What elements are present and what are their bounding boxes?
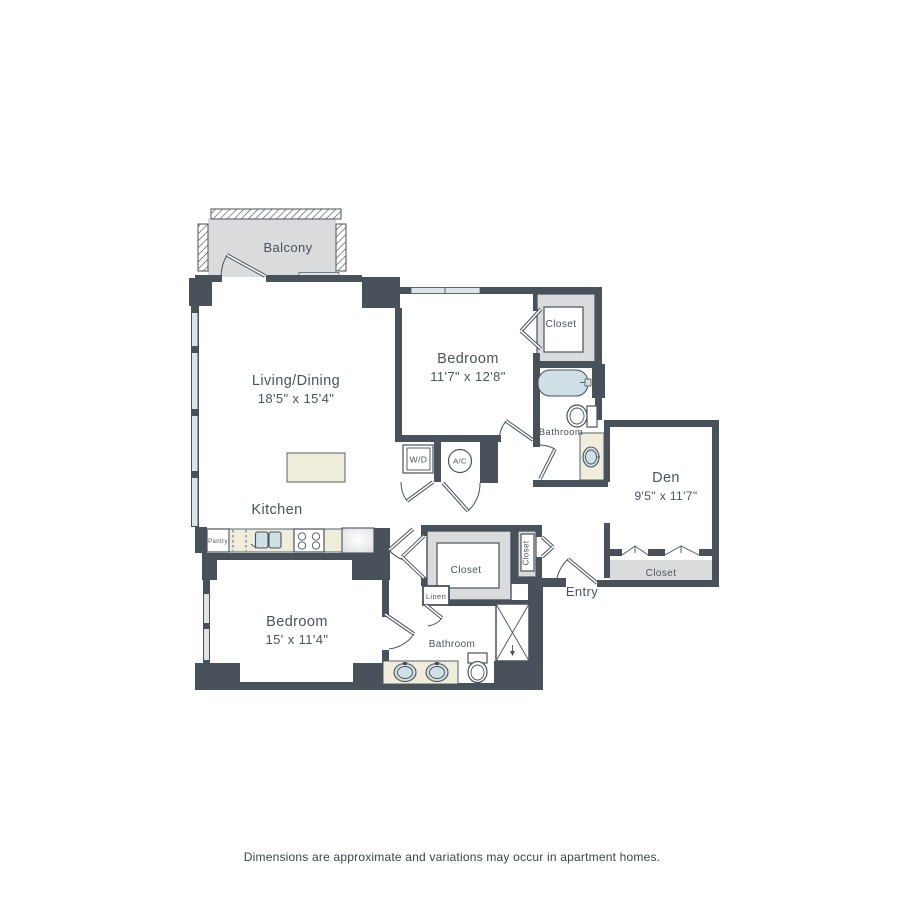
door-swing-arc: [468, 483, 480, 511]
window: [204, 594, 209, 623]
room-bathroom-1: Bathroom: [533, 353, 608, 487]
wall: [480, 440, 498, 483]
wall: [395, 308, 402, 442]
living-dining-label: Living/Dining: [252, 373, 340, 389]
room-bedroom-1: Bedroom 11'7" x 12'8": [396, 287, 543, 442]
entry-closet-door: [542, 537, 553, 557]
balcony: Balcony: [198, 209, 346, 280]
door-swing-arc: [428, 618, 442, 626]
door-leaf-core: [402, 536, 424, 557]
stove-body: [294, 529, 324, 552]
disclaimer-text: Dimensions are approximate and variation…: [244, 850, 660, 864]
kitchen-label: Kitchen: [251, 502, 302, 518]
balcony-railing-right: [336, 224, 346, 271]
washer-dryer-door: [401, 482, 433, 501]
bedroom-2-label: Bedroom: [266, 614, 328, 630]
window: [192, 313, 198, 346]
bedroom-2-dimensions: 15' x 11'4": [266, 632, 329, 647]
wall: [604, 523, 610, 578]
balcony-label: Balcony: [263, 240, 312, 255]
double-vanity-icon: [383, 661, 458, 684]
wall: [592, 364, 605, 398]
wall: [374, 528, 390, 553]
linen-label: Linen: [426, 592, 446, 601]
hall-door: [389, 529, 413, 560]
ac-door: [443, 483, 480, 511]
ac-unit-icon: A/C: [449, 450, 472, 473]
door-jamb: [610, 549, 622, 556]
toilet-tank: [587, 406, 597, 427]
entry-label: Entry: [566, 584, 598, 599]
bedroom-1-closet-label: Closet: [546, 319, 577, 330]
wall: [189, 278, 212, 306]
bedroom-1-label: Bedroom: [437, 351, 499, 367]
vanity-icon: [580, 433, 604, 480]
wall: [536, 557, 542, 577]
washer-dryer-label: W/D: [410, 455, 428, 465]
bathtub-icon: [538, 370, 591, 396]
toilet-icon: [567, 405, 597, 427]
window: [192, 353, 198, 409]
wall: [217, 553, 352, 560]
floor-plan-drawing: Balcony Living/Dining 18'5" x 15'4" Kitc…: [0, 0, 900, 900]
pantry-label: Pantry: [208, 539, 228, 545]
door-swing-arc: [389, 634, 414, 649]
balcony-railing-left: [198, 224, 208, 271]
wall: [595, 287, 602, 420]
door-leaf-core: [542, 547, 553, 557]
door-swing-arc: [540, 445, 555, 449]
window: [411, 288, 480, 294]
utility-closets: W/D A/C: [401, 440, 498, 511]
room-den: Closet Den 9'5" x 11'7": [604, 420, 719, 587]
door-leaf-core: [385, 614, 414, 634]
window: [192, 416, 198, 471]
bedroom-1-dimensions: 11'7" x 12'8": [430, 369, 506, 384]
den-dimensions: 9'5" x 11'7": [634, 489, 697, 503]
wall: [533, 361, 597, 368]
refrigerator-icon: [342, 528, 374, 553]
wall: [511, 577, 542, 584]
sink-basin: [256, 532, 269, 548]
kitchen-sink-icon: [251, 532, 281, 548]
wall: [382, 580, 389, 617]
window: [192, 478, 198, 526]
shower-icon: [496, 604, 529, 661]
bathtub: [538, 370, 588, 396]
wall: [195, 527, 207, 553]
door-leaf-core: [426, 605, 442, 618]
sink-basin: [269, 532, 281, 548]
den-closet-bifold-doors: [610, 546, 712, 556]
walk-in-closet-door: [402, 536, 424, 578]
bathtub-faucet: [585, 379, 591, 386]
wall: [604, 420, 719, 427]
door-leaf-core: [506, 421, 533, 440]
bathroom-1-label: Bathroom: [539, 427, 583, 438]
wall: [434, 442, 441, 482]
wall: [542, 578, 566, 587]
door-leaf-core: [443, 483, 468, 511]
wall: [533, 480, 608, 487]
stove-icon: [294, 529, 324, 552]
balcony-railing-top: [211, 209, 341, 219]
wall: [537, 287, 602, 294]
den-closet-label: Closet: [646, 568, 677, 579]
bathroom-2-label: Bathroom: [429, 639, 476, 650]
wall: [604, 580, 719, 587]
door-jamb: [648, 549, 665, 556]
toilet-icon: [468, 653, 487, 683]
wall: [421, 525, 427, 536]
door-jamb: [699, 549, 712, 556]
floor-plan-page: Balcony Living/Dining 18'5" x 15'4" Kitc…: [0, 0, 900, 900]
walk-in-closet-label: Closet: [451, 565, 482, 576]
wall: [511, 525, 518, 577]
washer-dryer-icon: W/D: [403, 445, 433, 473]
door-leaf-core: [407, 482, 433, 501]
kitchen-island: [287, 453, 345, 482]
door-swing-arc: [401, 482, 407, 501]
wall: [604, 427, 610, 482]
room-living-dining: Living/Dining 18'5" x 15'4" Kitchen: [189, 255, 402, 527]
den-label: Den: [652, 470, 680, 486]
wall: [362, 277, 400, 308]
faucet: [403, 662, 407, 665]
bedroom-2-door: [385, 614, 414, 649]
bifold-door: [665, 546, 699, 555]
door-leaf-core: [568, 559, 597, 583]
entry: Entry: [542, 559, 604, 599]
wall: [712, 420, 719, 587]
door-leaf-core: [402, 557, 424, 578]
living-dining-dimensions: 18'5" x 15'4": [258, 391, 335, 406]
wall: [421, 525, 542, 531]
wall: [240, 682, 353, 690]
door-leaf-core: [542, 537, 553, 547]
linen-door: [426, 605, 442, 626]
wall: [536, 531, 542, 537]
window: [204, 629, 209, 660]
wall: [352, 553, 390, 580]
door-leaf-core: [540, 449, 555, 479]
wall: [195, 663, 240, 690]
door-leaf-core: [389, 529, 413, 550]
wall: [266, 275, 362, 282]
linen-closet: Linen: [423, 586, 449, 626]
entry-closet-label: Closet: [522, 540, 531, 565]
bedroom-1-door: [499, 421, 533, 441]
ac-label: A/C: [453, 457, 467, 466]
bathroom-1-door: [540, 445, 555, 479]
faucet: [435, 662, 439, 665]
